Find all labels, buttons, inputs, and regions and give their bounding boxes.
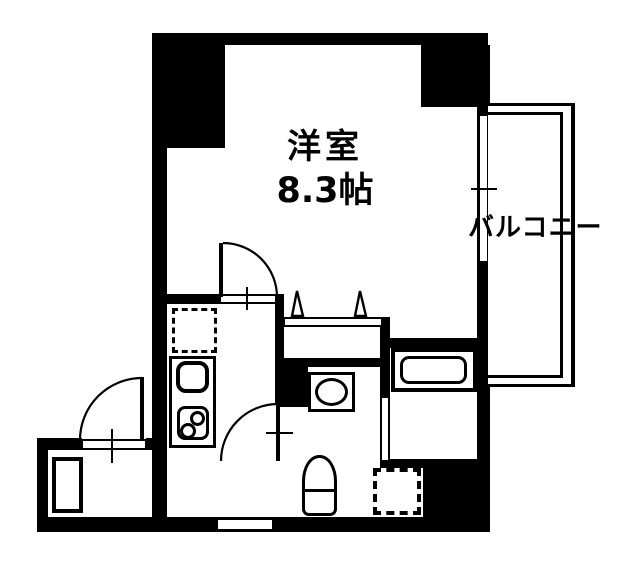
room-door-sill [219,294,277,304]
washbasin-bowl [315,378,348,406]
toilet [302,455,337,516]
room-door-arc [223,243,277,297]
wall-bath-top [387,338,478,348]
room-door-leaf [219,243,223,297]
washing-machine-space [373,468,421,515]
wall-corner-bottomright [423,459,490,519]
closet-triangle-left [292,291,303,316]
toilet-seat-line [304,489,335,492]
wall-kitchen-top [167,294,221,304]
wall-closet-bottom [283,358,383,367]
kitchen-sink [176,361,209,393]
room-door-tick [246,287,248,310]
wall-closet-right [380,317,390,399]
toilet-door-tick [266,432,293,434]
main-room-label: 洋室 [240,130,410,164]
wall-entrance-stub [146,438,167,450]
bathtub-inner [400,356,467,384]
closet-triangle-right [355,291,366,316]
wall-basin-block [279,362,308,407]
refrigerator-space [172,308,217,353]
shoe-cabinet [52,457,83,513]
floorplan-canvas: 洋室 8.3帖 バルコニー [0,0,622,562]
entrance-door-tick [111,429,113,463]
entry-opening-bottom-wall [216,518,274,531]
balcony-railing-inner [488,112,563,378]
wall-entrance-left [37,438,48,532]
closet-door-band [283,317,383,327]
balcony-label: バルコニー [468,215,602,241]
main-room-size-label: 8.3帖 [240,174,410,209]
balcony-window-tick [471,188,497,190]
entrance-door-leaf [140,377,144,440]
entrance-door-sill [81,439,147,450]
bathroom-door [380,398,390,460]
stove-burner-left [180,423,196,439]
